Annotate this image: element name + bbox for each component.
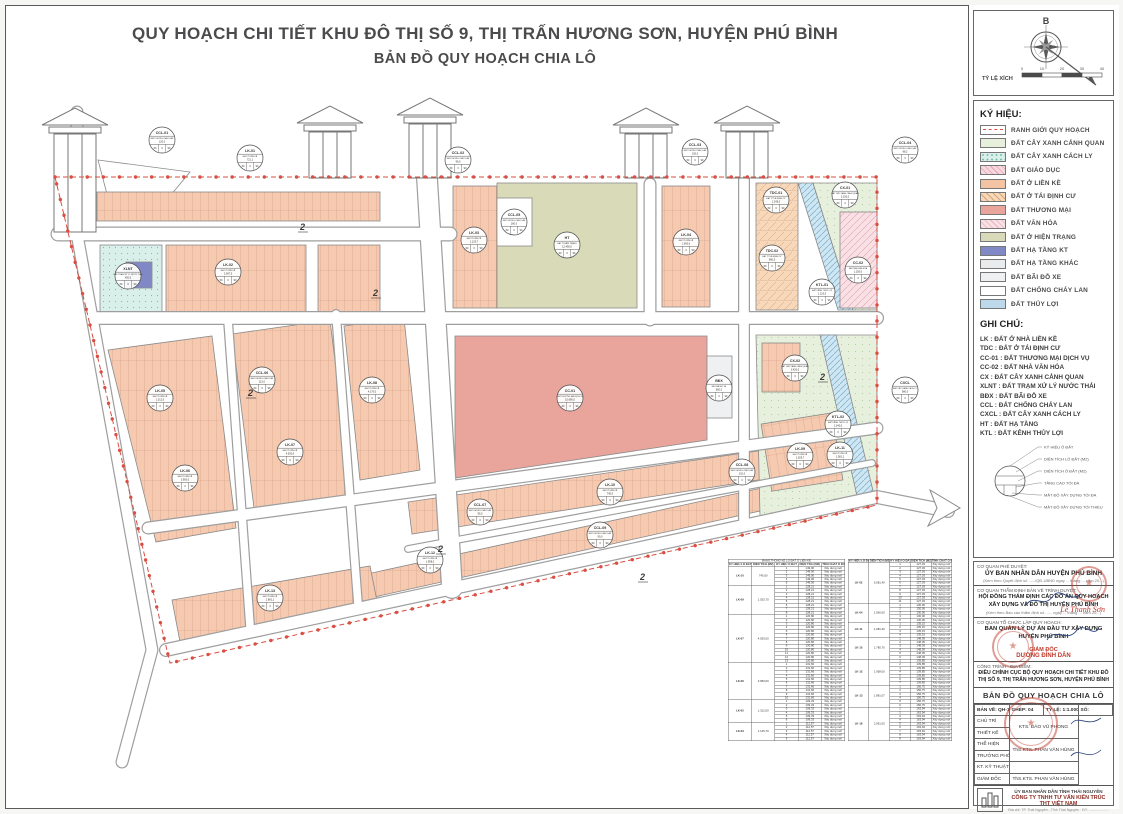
legend-item-label: ĐẤT CHỐNG CHÁY LAN <box>1011 287 1088 294</box>
zone-label-bđx: BĐXĐẤT BÃI ĐỖ XE650,060390 <box>706 375 732 401</box>
legend-item-10: ĐẤT HẠ TẦNG KT <box>980 246 1107 256</box>
drawing-title: BẢN ĐỒ QUY HOẠCH CHIA LÔ <box>974 688 1113 704</box>
svg-text:112,0: 112,0 <box>259 381 266 384</box>
svg-text:LK-04: LK-04 <box>681 233 691 237</box>
personnel-role: TRƯỞNG PHÒNG <box>975 750 1010 762</box>
block-lk-mid3 <box>344 318 420 480</box>
zone-label-lk-11: LK-11ĐẤT Ở LIỀN KỀ1.081,260390 <box>827 442 853 468</box>
organizer-name: BAN QUẢN LÝ DỰ ÁN ĐẦU TƯ XÂY DỰNG HUYỆN … <box>977 626 1110 641</box>
company-name: CÔNG TY TNHH TƯ VẤN KIẾN TRÚC THT VIỆT N… <box>1007 795 1110 807</box>
svg-text:HT: HT <box>565 236 571 240</box>
road-marker-6: 2 <box>639 572 645 582</box>
svg-text:2.150,0: 2.150,0 <box>841 196 850 199</box>
svg-text:1.958,0: 1.958,0 <box>426 561 435 564</box>
note-line-11: KTL : ĐẤT KÊNH THỦY LỢI <box>980 429 1107 438</box>
scale-bar: 010203040 <box>1021 66 1105 77</box>
scale-label: TỶ LỆ XÍCH <box>982 74 1013 82</box>
diagram-label-5: MẬT ĐỘ XÂY DỰNG TỐI ĐA <box>1044 492 1097 497</box>
zone-label-lk-05: LK-05ĐẤT Ở LIỀN KỀ1.312,060390 <box>147 385 173 411</box>
personnel-role: THỂ HIỆN <box>975 739 1010 751</box>
svg-text:90,0: 90,0 <box>598 536 603 539</box>
svg-text:260,0: 260,0 <box>511 223 518 226</box>
note-line-3: CC-01 : ĐẤT THƯƠNG MẠI DỊCH VỤ <box>980 354 1107 363</box>
svg-text:CCL-08: CCL-08 <box>736 463 749 467</box>
svg-text:CCL-09: CCL-09 <box>594 526 607 530</box>
legend-swatch-ht <box>980 232 1006 242</box>
zone-label-lk-09: LK-09ĐẤT Ở LIỀN KỀ1.025,760390 <box>787 443 813 469</box>
zone-label-lk-03: LK-03ĐẤT Ở LIỀN KỀ1.125,760390 <box>461 227 487 253</box>
zone-label-ccl-08: CCL-08ĐẤT CHỐNG CHÁY LAN102,060390 <box>729 459 755 485</box>
page-title-line1: QUY HOẠCH CHI TIẾT KHU ĐÔ THỊ SỐ 9, THỊ … <box>10 24 960 44</box>
svg-text:CCL-06: CCL-06 <box>256 371 269 375</box>
personnel-role: GIÁM ĐỐC <box>975 773 1010 785</box>
svg-text:LK-12: LK-12 <box>425 551 435 555</box>
svg-text:1.250,0: 1.250,0 <box>854 271 863 274</box>
svg-text:1.081,2: 1.081,2 <box>836 456 845 459</box>
zone-label-tdc-01: TDC-01ĐẤT Ở TÁI ĐỊNH CƯ1.245,060390 <box>763 187 789 213</box>
svg-text:LK-08: LK-08 <box>367 381 377 385</box>
project-name: ĐIỀU CHỈNH CỤC BỘ QUY HOẠCH CHI TIẾT KHU… <box>977 670 1110 685</box>
zone-label-lk-01: LK-01ĐẤT Ở LIỀN KỀ721,160390 <box>237 145 263 171</box>
zone-label-ktl-01: KTL-01ĐẤT KÊNH THỦY LỢI1.120,060390 <box>809 279 835 305</box>
legend-item-2: ĐẤT CÂY XANH CẢNH QUAN <box>980 138 1107 148</box>
svg-text:20: 20 <box>1060 66 1065 71</box>
svg-text:LK-03: LK-03 <box>469 231 479 235</box>
gate-symbol-4 <box>613 108 679 178</box>
note-line-1: LK : ĐẤT Ở NHÀ LIỀN KỀ <box>980 335 1107 344</box>
legend-swatch-vh <box>980 219 1006 229</box>
svg-text:LK-07: LK-07 <box>285 443 295 447</box>
zone-label-ccl-01: CCL-01ĐẤT CHỐNG CHÁY LAN120,060390 <box>149 127 175 153</box>
svg-text:105,0: 105,0 <box>692 153 699 156</box>
legend-item-label: RANH GIỚI QUY HOẠCH <box>1011 127 1090 134</box>
legend-panel: KÝ HIỆU: RANH GIỚI QUY HOẠCHĐẤT CÂY XANH… <box>973 100 1114 558</box>
svg-text:LK-01: LK-01 <box>245 149 255 153</box>
diagram-label-1: KÝ HIỆU Ô ĐẤT <box>1044 444 1074 449</box>
svg-text:1.120,0: 1.120,0 <box>818 293 827 296</box>
legend-title: KÝ HIỆU: <box>980 109 1107 120</box>
svg-text:650,0: 650,0 <box>716 389 723 392</box>
svg-text:96,5: 96,5 <box>456 161 461 164</box>
svg-text:TDC-01: TDC-01 <box>770 191 783 195</box>
zone-label-lk-10: LK-10ĐẤT Ở LIỀN KỀ745,060390 <box>597 479 623 505</box>
legend-item-14: ĐẤT THỦY LỢI <box>980 299 1107 309</box>
legend-item-1: RANH GIỚI QUY HOẠCH <box>980 125 1107 135</box>
zone-label-ccl-04: CCL-04ĐẤT CHỐNG CHÁY LAN88,260390 <box>892 137 918 163</box>
legend-item-label: ĐẤT Ở TÁI ĐỊNH CƯ <box>1011 193 1076 200</box>
page-title-line2: BẢN ĐỒ QUY HOẠCH CHIA LÔ <box>10 51 960 67</box>
legend-item-4: ĐẤT GIÁO DỤC <box>980 165 1107 175</box>
personnel-role: KT. KỸ THUẬT <box>975 762 1010 774</box>
svg-text:LK-09: LK-09 <box>795 447 805 451</box>
legend-item-5: ĐẤT Ở LIỀN KỀ <box>980 179 1107 189</box>
svg-text:CCL-02: CCL-02 <box>452 151 465 155</box>
svg-text:1.025,7: 1.025,7 <box>796 457 805 460</box>
zone-label-lk-04: LK-04ĐẤT Ở LIỀN KỀ1.560,060390 <box>673 229 699 255</box>
note-lines: LK : ĐẤT Ở NHÀ LIỀN KỀTDC : ĐẤT Ở TÁI ĐỊ… <box>980 335 1107 438</box>
lot-statistics-table-right: KÝ HIỆU LÔ ĐẤTDIỆN TÍCH (M2)KÝ HIỆU Ô ĐẤ… <box>848 559 952 741</box>
svg-text:12.450,0: 12.450,0 <box>562 246 572 249</box>
svg-text:TDC-02: TDC-02 <box>766 249 779 253</box>
project-label: CÔNG TRÌNH - ĐỊA ĐIỂM: <box>977 664 1110 669</box>
company-address: Địa chỉ: TP. Thái Nguyên - Tỉnh Thái Ngu… <box>1007 808 1110 812</box>
legend-swatch-cx <box>980 138 1006 148</box>
svg-text:LK-05: LK-05 <box>155 389 165 393</box>
svg-text:BĐX: BĐX <box>715 379 723 383</box>
legend-item-label: ĐẤT BÃI ĐỖ XE <box>1011 274 1061 281</box>
diagram-label-6: MẬT ĐỘ XÂY DỰNG TỐI THIỂU <box>1044 504 1103 509</box>
legend-swatch-lk <box>980 179 1006 189</box>
project-row: CÔNG TRÌNH - ĐỊA ĐIỂM: ĐIỀU CHỈNH CỤC BỘ… <box>974 662 1113 688</box>
legend-item-12: ĐẤT BÃI ĐỖ XE <box>980 272 1107 282</box>
svg-text:KTL-01: KTL-01 <box>816 283 828 287</box>
svg-text:88,2: 88,2 <box>903 151 908 154</box>
svg-text:LK-10: LK-10 <box>605 483 615 487</box>
organizer-row: CƠ QUAN TỔ CHỨC LẬP QUY HOẠCH: BAN QUẢN … <box>974 618 1113 662</box>
svg-text:CC-01: CC-01 <box>565 389 575 393</box>
zone-label-lk-13: LK-13ĐẤT Ở LIỀN KỀ1.881,160390 <box>257 585 283 611</box>
svg-text:15.680,0: 15.680,0 <box>565 399 575 402</box>
legend-item-3: ĐẤT CÂY XANH CÁCH LY <box>980 152 1107 162</box>
legend-swatch-tm <box>980 205 1006 215</box>
legend-item-label: ĐẤT CÂY XANH CÁCH LY <box>1011 153 1093 160</box>
legend-item-7: ĐẤT THƯƠNG MẠI <box>980 205 1107 215</box>
svg-text:CX-02: CX-02 <box>790 359 800 363</box>
svg-text:1.560,0: 1.560,0 <box>682 243 691 246</box>
legend-swatch-boundary <box>980 125 1006 135</box>
zone-label-lk-02: LK-02ĐẤT Ở LIỀN KỀ2.087,560390 <box>215 259 241 285</box>
svg-text:XLNT: XLNT <box>123 267 133 271</box>
svg-text:10: 10 <box>1040 66 1045 71</box>
zone-label-ccl-07: CCL-07ĐẤT CHỐNG CHÁY LAN95,060390 <box>467 499 493 525</box>
compass-rose: B TỶ LỆ XÍCH 010203040 <box>974 11 1114 95</box>
svg-text:120,0: 120,0 <box>159 141 166 144</box>
legend-items: RANH GIỚI QUY HOẠCHĐẤT CÂY XANH CẢNH QUA… <box>980 125 1107 309</box>
svg-text:4.170,0: 4.170,0 <box>368 391 377 394</box>
svg-text:1.125,7: 1.125,7 <box>470 241 479 244</box>
legend-swatch-tl <box>980 299 1006 309</box>
svg-text:0: 0 <box>1021 66 1024 71</box>
compass-box: B TỶ LỆ XÍCH 010203040 <box>973 10 1114 96</box>
review-row: CƠ QUAN THẨM ĐỊNH BẢN VẼ TRÌNH DUYỆT: HỘ… <box>974 586 1113 618</box>
zone-label-cxcl: CXCLĐẤT CÂY XANH CÁCH LY980,060390 <box>892 377 918 403</box>
gate-symbol-5 <box>714 106 780 178</box>
zone-label-lk-07: LK-07ĐẤT Ở LIỀN KỀ4.530,060390 <box>277 439 303 465</box>
personnel-role: THIẾT KẾ <box>975 727 1010 739</box>
zone-label-lk-08: LK-08ĐẤT Ở LIỀN KỀ4.170,060390 <box>359 377 385 403</box>
road-marker-4: 2 <box>819 372 825 382</box>
legend-item-13: ĐẤT CHỐNG CHÁY LAN <box>980 286 1107 296</box>
svg-text:LK-13: LK-13 <box>265 589 275 593</box>
note-line-10: HT : ĐẤT HẠ TẦNG <box>980 420 1107 429</box>
title-block: CƠ QUAN PHÊ DUYỆT: ỦY BAN NHÂN DÂN HUYỆN… <box>973 561 1114 806</box>
approver-row: CƠ QUAN PHÊ DUYỆT: ỦY BAN NHÂN DÂN HUYỆN… <box>974 562 1113 586</box>
svg-text:CXCL: CXCL <box>900 381 911 385</box>
svg-text:721,1: 721,1 <box>247 159 254 162</box>
svg-text:95,0: 95,0 <box>478 513 483 516</box>
note-line-9: CXCL : ĐẤT CÂY XANH CÁCH LY <box>980 410 1107 419</box>
svg-text:980,5: 980,5 <box>769 259 776 262</box>
legend-swatch-ccl <box>980 286 1006 296</box>
zone-label-ccl-05: CCL-05ĐẤT CHỐNG CHÁY LAN260,060390 <box>501 209 527 235</box>
svg-text:LK-02: LK-02 <box>223 263 233 267</box>
legend-swatch-cxcl <box>980 152 1006 162</box>
svg-text:CX-01: CX-01 <box>840 186 850 190</box>
legend-item-label: ĐẤT VĂN HÓA <box>1011 220 1058 227</box>
lot-symbol-diagram: KÝ HIỆU Ô ĐẤTDIỆN TÍCH LÔ ĐẤT (M2)DIỆN T… <box>980 439 1116 513</box>
table-row: LK-074.530,001120,80Xây dựng mới <box>728 615 845 619</box>
note-line-8: CCL : ĐẤT CHỐNG CHÁY LAN <box>980 401 1107 410</box>
zone-label-cc-01: CC-01ĐẤT THƯƠNG MẠI DỊCH VỤ15.680,060390 <box>557 385 584 411</box>
svg-text:CCL-07: CCL-07 <box>474 503 487 507</box>
personnel-role: CHỦ TRÌ <box>975 716 1010 728</box>
svg-text:CC-02: CC-02 <box>853 261 863 265</box>
organizer-label: CƠ QUAN TỔ CHỨC LẬP QUY HOẠCH: <box>977 620 1110 625</box>
page-title: QUY HOẠCH CHI TIẾT KHU ĐÔ THỊ SỐ 9, THỊ … <box>10 24 960 67</box>
block-lk-row1 <box>97 192 380 221</box>
legend-item-label: ĐẤT HẠ TẦNG KHÁC <box>1011 260 1078 267</box>
plan-sheet: { "page": { "title_line1": "QUY HOẠCH CH… <box>0 0 1123 814</box>
legend-item-label: ĐẤT CÂY XANH CẢNH QUAN <box>1011 140 1104 147</box>
company-row: ỦY BAN NHÂN DÂN TỈNH THÁI NGUYÊN CÔNG TY… <box>974 785 1113 814</box>
note-line-5: CX : ĐẤT CÂY XANH CẢNH QUAN <box>980 373 1107 382</box>
svg-text:980,0: 980,0 <box>902 391 909 394</box>
company-authority: ỦY BAN NHÂN DÂN TỈNH THÁI NGUYÊN <box>1007 789 1110 794</box>
diagram-label-4: TẦNG CAO TỐI ĐA <box>1044 480 1080 485</box>
svg-text:102,0: 102,0 <box>739 473 746 476</box>
svg-text:1.340,0: 1.340,0 <box>834 425 843 428</box>
svg-text:1.312,0: 1.312,0 <box>156 399 165 402</box>
review-label: CƠ QUAN THẨM ĐỊNH BẢN VẼ TRÌNH DUYỆT: <box>977 588 1110 593</box>
legend-item-label: ĐẤT THƯƠNG MẠI <box>1011 207 1071 214</box>
north-label: B <box>1043 16 1050 26</box>
svg-text:4.530,0: 4.530,0 <box>286 453 295 456</box>
company-logo <box>977 788 1003 812</box>
legend-item-label: ĐẤT GIÁO DỤC <box>1011 167 1060 174</box>
legend-item-label: ĐẤT HẠ TẦNG KT <box>1011 247 1068 254</box>
legend-swatch-tdc <box>980 192 1006 202</box>
zone-label-ht: HTĐẤT Ở HIỆN TRẠNG12.450,060390 <box>554 232 580 258</box>
legend-item-11: ĐẤT HẠ TẦNG KHÁC <box>980 259 1107 269</box>
svg-text:2.087,5: 2.087,5 <box>224 273 233 276</box>
svg-text:CCL-01: CCL-01 <box>156 131 169 135</box>
note-line-6: XLNT : ĐẤT TRẠM XỬ LÝ NƯỚC THẢI <box>980 382 1107 391</box>
gate-symbol-2 <box>297 106 363 178</box>
zone-label-ccl-09: CCL-09ĐẤT CHỐNG CHÁY LAN90,060390 <box>587 522 613 548</box>
legend-item-9: ĐẤT Ở HIỆN TRẠNG <box>980 232 1107 242</box>
svg-text:3.950,0: 3.950,0 <box>181 479 190 482</box>
svg-text:CCL-05: CCL-05 <box>508 213 521 217</box>
svg-text:LK-06: LK-06 <box>180 469 190 473</box>
legend-item-6: ĐẤT Ở TÁI ĐỊNH CƯ <box>980 192 1107 202</box>
legend-item-label: ĐẤT Ở HIỆN TRẠNG <box>1011 234 1076 241</box>
svg-text:30: 30 <box>1080 66 1085 71</box>
road-marker-1: 2 <box>299 222 305 232</box>
svg-text:3.420,0: 3.420,0 <box>791 369 800 372</box>
svg-text:CCL-03: CCL-03 <box>689 143 702 147</box>
zone-label-ccl-03: CCL-03ĐẤT CHỐNG CHÁY LAN105,060390 <box>682 139 708 165</box>
notes-title: GHI CHÚ: <box>980 319 1107 330</box>
diagram-label-2: DIỆN TÍCH LÔ ĐẤT (M2) <box>1044 456 1089 461</box>
legend-item-label: ĐẤT Ở LIỀN KỀ <box>1011 180 1061 187</box>
svg-text:40: 40 <box>1100 66 1105 71</box>
zone-label-lk-06: LK-06ĐẤT Ở LIỀN KỀ3.950,060390 <box>172 465 198 491</box>
svg-text:1.881,1: 1.881,1 <box>266 599 275 602</box>
legend-swatch-htk <box>980 259 1006 269</box>
zone-label-tdc-02: TDC-02ĐẤT Ở TÁI ĐỊNH CƯ980,560390 <box>759 245 785 271</box>
block-lk-row2b <box>318 245 380 312</box>
svg-text:420,0: 420,0 <box>125 277 132 280</box>
lot-statistics-table-left: BẢNG THỐNG KÊ LÔ ĐẤT Ở LIỀN KỀKÝ HIỆU LÔ… <box>728 559 845 741</box>
review-signature: Lê Thanh Sơn <box>1060 605 1105 614</box>
personnel-grid: BẢN VẼ: QH-14GHÉP: 04TỶ LỆ: 1:1.000SỐ: C… <box>974 704 1113 786</box>
organizer-signer: DƯƠNG ĐÌNH DÂN <box>977 653 1110 659</box>
zone-label-ccl-02: CCL-02ĐẤT CHỐNG CHÁY LAN96,560390 <box>445 147 471 173</box>
legend-swatch-bdx <box>980 272 1006 282</box>
sidebar: B TỶ LỆ XÍCH 010203040 KÝ HIỆU: RANH GIỚ… <box>968 5 1119 809</box>
note-line-7: BĐX : ĐẤT BÃI ĐỖ XE <box>980 392 1107 401</box>
zone-label-cc-02: CC-02ĐẤT NHÀ VĂN HÓA1.250,060390 <box>845 257 871 283</box>
notes-panel: GHI CHÚ: LK : ĐẤT Ở NHÀ LIỀN KỀTDC : ĐẤT… <box>980 319 1107 517</box>
approver-name: ỦY BAN NHÂN DÂN HUYỆN PHÚ BÌNH <box>977 570 1110 577</box>
approver-sub: (Kèm theo Quyết định số ....../QĐ-UBND n… <box>977 578 1110 583</box>
approver-label: CƠ QUAN PHÊ DUYỆT: <box>977 564 1110 569</box>
zone-label-ktl-02: KTL-02ĐẤT KÊNH THỦY LỢI1.340,060390 <box>825 411 851 437</box>
legend-swatch-gd <box>980 165 1006 175</box>
svg-text:CCL-04: CCL-04 <box>899 141 912 145</box>
svg-text:745,0: 745,0 <box>607 493 614 496</box>
road-marker-2: 2 <box>372 288 378 298</box>
svg-text:KTL-02: KTL-02 <box>832 415 844 419</box>
road-marker-3: 2 <box>247 388 253 398</box>
legend-item-label: ĐẤT THỦY LỢI <box>1011 301 1059 308</box>
svg-text:1.245,0: 1.245,0 <box>772 201 781 204</box>
note-line-4: CC-02 : ĐẤT NHÀ VĂN HÓA <box>980 363 1107 372</box>
legend-item-8: ĐẤT VĂN HÓA <box>980 219 1107 229</box>
road-marker-5: 2 <box>437 544 443 554</box>
svg-text:LK-11: LK-11 <box>835 446 845 450</box>
note-line-2: TDC : ĐẤT Ở TÁI ĐỊNH CƯ <box>980 344 1107 353</box>
diagram-label-3: DIỆN TÍCH Ô ĐẤT (M2) <box>1044 468 1087 473</box>
legend-swatch-htkt <box>980 246 1006 256</box>
